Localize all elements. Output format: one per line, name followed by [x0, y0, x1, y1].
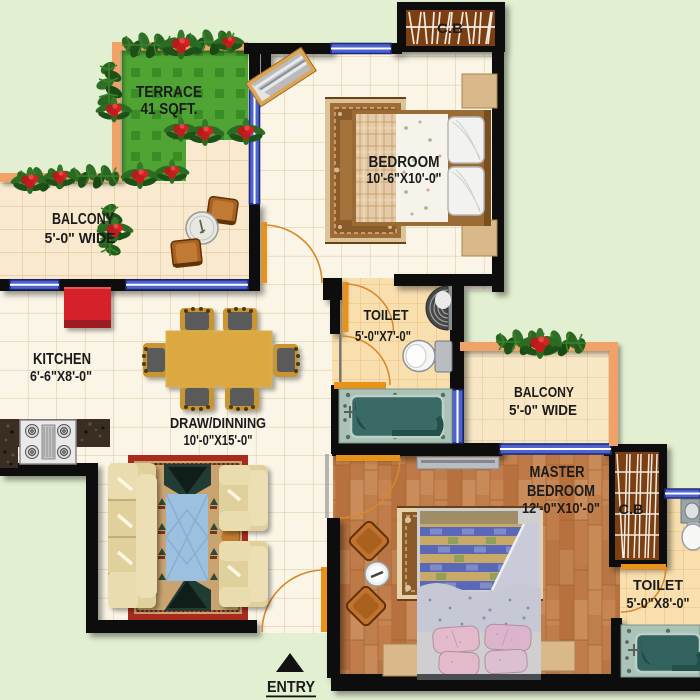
svg-text:10'-6"X10'-0": 10'-6"X10'-0": [367, 170, 442, 187]
svg-text:BEDROOM: BEDROOM: [527, 483, 595, 500]
svg-text:5'-0" WIDE: 5'-0" WIDE: [509, 403, 577, 419]
svg-text:5'-0"X8'-0": 5'-0"X8'-0": [627, 596, 690, 612]
svg-text:KITCHEN: KITCHEN: [33, 351, 91, 368]
svg-text:TERRACE: TERRACE: [136, 84, 202, 101]
svg-text:DRAW/DINNING: DRAW/DINNING: [170, 415, 266, 432]
svg-text:BALCONY: BALCONY: [52, 211, 115, 228]
svg-text:5'-0"X7'-0": 5'-0"X7'-0": [355, 329, 411, 345]
svg-text:C.B: C.B: [619, 502, 644, 517]
svg-text:10'-0"X15'-0": 10'-0"X15'-0": [184, 433, 253, 449]
svg-text:TOILET: TOILET: [633, 577, 683, 594]
svg-text:12'-0"X10'-0": 12'-0"X10'-0": [522, 500, 600, 517]
svg-text:5'-0" WIDE: 5'-0" WIDE: [45, 230, 116, 247]
svg-text:TOILET: TOILET: [364, 307, 409, 324]
svg-text:BALCONY: BALCONY: [514, 384, 574, 401]
svg-text:MASTER: MASTER: [530, 464, 585, 481]
svg-text:BEDROOM: BEDROOM: [369, 154, 440, 171]
svg-text:41 SQFT.: 41 SQFT.: [141, 101, 198, 118]
svg-text:ENTRY: ENTRY: [267, 679, 316, 696]
svg-text:C.B: C.B: [437, 21, 463, 36]
svg-text:6'-6"X8'-0": 6'-6"X8'-0": [30, 368, 92, 385]
